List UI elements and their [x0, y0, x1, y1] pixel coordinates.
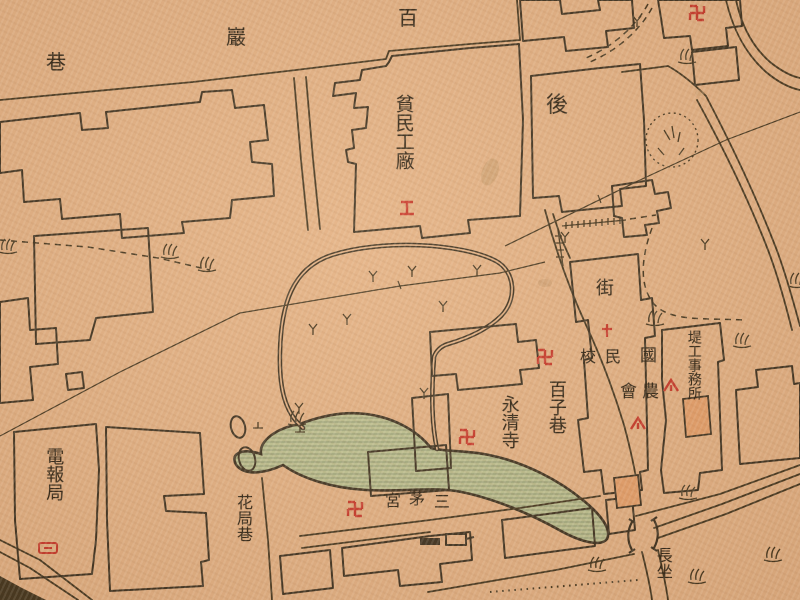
temple-swastika-icon: [460, 430, 474, 444]
temple-swastika-icon: [690, 6, 704, 20]
office-label: 堤工事務所: [680, 330, 706, 400]
factory-label: 貧民工廠: [390, 94, 416, 170]
cross-icon: [602, 324, 612, 337]
association-label-char: 會: [620, 384, 637, 401]
street-name-char: 巷: [46, 52, 66, 72]
street-name-char: 百: [398, 8, 418, 28]
telegraph-icon: [39, 543, 57, 553]
street-label: 街: [596, 280, 614, 298]
temple-swastika-icon: [348, 502, 362, 516]
palace-label-char: 茅: [409, 491, 425, 507]
telegraph-bureau-label: 電報局: [37, 447, 70, 501]
hou-label: 後: [546, 95, 568, 117]
palace-label-char: 宮: [385, 493, 401, 509]
camp-icon: [664, 380, 678, 391]
camp-icon: [631, 418, 645, 429]
temple-swastika-icon: [538, 350, 552, 364]
map-canvas[interactable]: 百 巖 巷 貧民工廠 後 街 校 民 國 會 農 堤工事務所 百子巷 永清寺 宮…: [0, 0, 800, 600]
paper-stains: [478, 90, 705, 287]
school-label-char: 國: [640, 348, 657, 365]
street-lines: [0, 0, 800, 600]
school-label-char: 民: [605, 349, 621, 365]
palace-label-char: 三: [434, 494, 450, 510]
mound: [646, 113, 698, 167]
temple-label: 永清寺: [493, 395, 524, 449]
association-label-char: 農: [642, 384, 659, 401]
school-label-char: 校: [580, 349, 596, 365]
changzuo-label: 長坐: [648, 547, 677, 579]
street-name-char: 巖: [226, 27, 246, 47]
dotted-path: [490, 580, 638, 592]
dashed-paths: [0, 4, 744, 320]
lane-label: 花局巷: [227, 494, 259, 542]
factory-icon: [400, 202, 414, 214]
lane-label: 百子巷: [542, 380, 570, 434]
map-geometry: [0, 0, 800, 600]
